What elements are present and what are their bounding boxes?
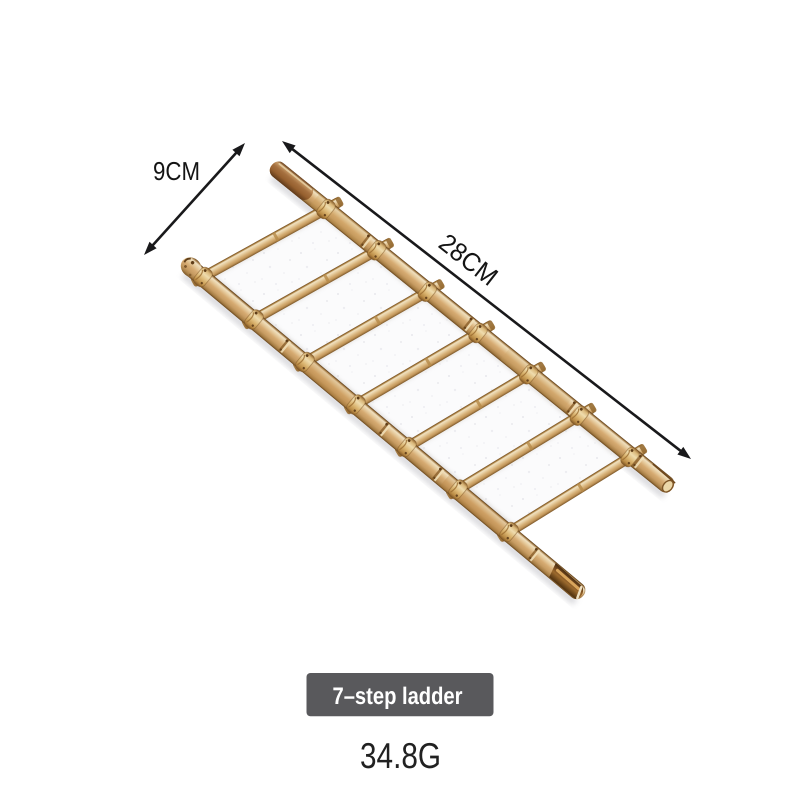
svg-text:28CM: 28CM	[433, 227, 503, 291]
svg-text:9CM: 9CM	[153, 156, 200, 186]
svg-text:34.8G: 34.8G	[360, 735, 441, 776]
svg-text:7–step ladder: 7–step ladder	[332, 683, 462, 710]
